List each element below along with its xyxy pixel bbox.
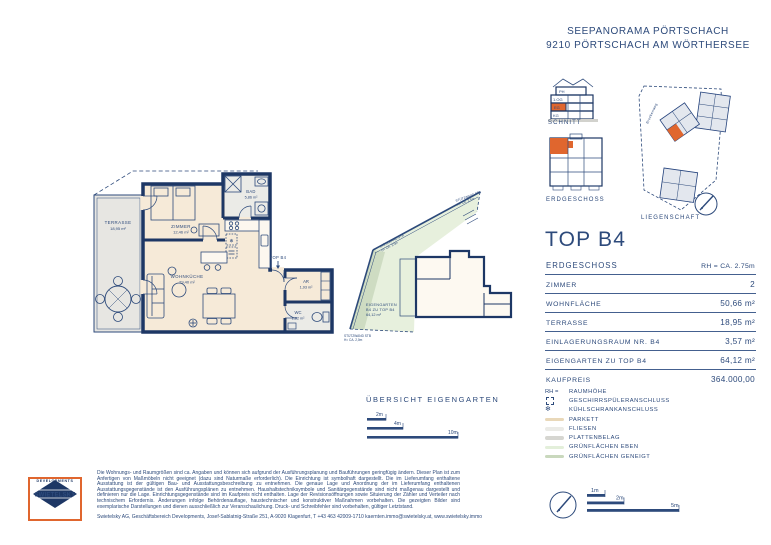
company-line: Swietelsky AG, Geschäftsbereich Developm… bbox=[97, 514, 517, 520]
project-name: SEEPANORAMA PÖRTSCHACH bbox=[538, 25, 758, 39]
mini-unit-outline bbox=[416, 251, 511, 317]
legend-row-geschirrspueler: GESCHIRRSPÜLERANSCHLUSS bbox=[545, 396, 756, 405]
bath-area: 5,86 m² bbox=[245, 196, 259, 200]
spec-row-terrasse: TERRASSE 18,95 m² bbox=[545, 313, 756, 332]
living-kitchen-label: WOHNKÜCHE bbox=[171, 274, 204, 279]
terrace: TERRASSE 18,95 m² bbox=[94, 195, 143, 332]
scale-2m: 2m bbox=[376, 412, 383, 418]
disclaimer-text: Die Wohnungs- und Raumgrößen sind ca. An… bbox=[97, 471, 460, 510]
spec-header-row: ERDGESCHOSS RH = CA. 2.75m bbox=[545, 256, 756, 275]
snowflake-icon: ❄ bbox=[229, 239, 233, 245]
project-address: 9210 PÖRTSCHACH AM WÖRTHERSEE bbox=[538, 39, 758, 53]
storage-label: AR bbox=[303, 279, 309, 284]
project-header: SEEPANORAMA PÖRTSCHACH 9210 PÖRTSCHACH A… bbox=[538, 25, 758, 52]
erdgeschoss-caption: ERDGESCHOSS bbox=[546, 197, 605, 203]
plattenbelag-swatch bbox=[545, 436, 564, 440]
svg-text:H= CA. 2,0m: H= CA. 2,0m bbox=[344, 338, 363, 342]
scale-4m: 4m bbox=[394, 421, 401, 427]
svg-text:EIGENGARTEN: EIGENGARTEN bbox=[366, 303, 397, 307]
north-compass-icon bbox=[550, 492, 576, 518]
floor-label-eg: EG bbox=[554, 105, 560, 110]
legend-row-gruen-eben: GRÜNFLÄCHEN EBEN bbox=[545, 443, 756, 452]
schnitt-diagram: PH 1.OG EG KG bbox=[548, 76, 600, 124]
gruenflaeche-geneigt-swatch bbox=[545, 455, 564, 459]
spec-table: ERDGESCHOSS RH = CA. 2.75m ZIMMER 2 WOHN… bbox=[545, 256, 756, 388]
spec-floor-label: ERDGESCHOSS bbox=[546, 261, 618, 270]
roof-outline bbox=[553, 79, 593, 87]
scale-5m: 5m bbox=[671, 503, 679, 509]
living-kitchen-area: 29,40 m² bbox=[179, 280, 195, 285]
garden-overview: STÜTZWAND STB H= CA. 2,5m STÜTZWAND STB … bbox=[338, 180, 523, 348]
swietelsky-logo-mark: SWIETELSKY bbox=[31, 479, 79, 509]
spec-row-eigengarten: EIGENGARTEN ZU TOP B4 64,12 m² bbox=[545, 351, 756, 370]
legend-row-plattenbelag: PLATTENBELAG bbox=[545, 433, 756, 442]
liegenschaft-caption: LIEGENSCHAFT bbox=[641, 215, 700, 221]
fliesen-swatch bbox=[545, 427, 564, 431]
legend-row-kuehlschrank: ❄ KÜHLSCHRANKANSCHLUSS bbox=[545, 406, 756, 415]
erdgeschoss-diagram bbox=[546, 132, 610, 196]
svg-text:64,12 m²: 64,12 m² bbox=[366, 313, 382, 317]
legend-row-parkett: PARKETT bbox=[545, 415, 756, 424]
legend-row-fliesen: FLIESEN bbox=[545, 424, 756, 433]
entry-marker: TOP B4 bbox=[270, 255, 287, 269]
spec-row-zimmer: ZIMMER 2 bbox=[545, 275, 756, 294]
liegenschaft-diagram: Brockenweg bbox=[636, 82, 758, 220]
entry-label: TOP B4 bbox=[270, 255, 287, 260]
spec-row-einlagerungsraum: EINLAGERUNGSRAUM NR. B4 3,57 m² bbox=[545, 332, 756, 351]
scale-2m-b: 2m bbox=[616, 496, 624, 502]
floorplan-sheet: { "header": { "line1": "SEEPANORAMA PÖRT… bbox=[0, 0, 771, 545]
parkett-swatch bbox=[545, 418, 564, 422]
schnitt-caption: SCHNITT bbox=[548, 120, 582, 126]
scale-1m: 1m bbox=[591, 488, 599, 494]
snowflake-icon: ❄ bbox=[545, 407, 551, 413]
highlighted-unit-b4 bbox=[550, 138, 568, 154]
garden-overview-title: ÜBERSICHT EIGENGARTEN bbox=[366, 395, 499, 404]
building-b4 bbox=[660, 103, 699, 142]
floor-label-kg: KG bbox=[553, 113, 559, 118]
svg-text:Brockenweg: Brockenweg bbox=[645, 103, 658, 125]
terrace-label: TERRASSE bbox=[105, 220, 132, 225]
kitchen-island bbox=[201, 252, 227, 263]
scale-10m: 10m bbox=[448, 430, 458, 436]
dishwasher-connection-icon bbox=[546, 397, 554, 405]
storage-area: 1,93 m² bbox=[300, 286, 314, 290]
floor-label-ph: PH bbox=[559, 89, 565, 94]
legend-row-gruen-geneigt: GRÜNFLÄCHEN GENEIGT bbox=[545, 452, 756, 461]
wc-label: WC bbox=[295, 310, 302, 315]
building-south bbox=[660, 168, 698, 202]
legend-row-raumhoehe: RH = RAUMHÖHE bbox=[545, 387, 756, 396]
street-label: Brockenweg bbox=[645, 103, 658, 125]
bedroom-area: 12,46 m² bbox=[173, 230, 189, 235]
logo-wordmark: SWIETELSKY bbox=[34, 492, 75, 498]
gruenflaeche-eben-swatch bbox=[545, 446, 564, 450]
bedroom-label: ZIMMER bbox=[171, 224, 191, 229]
retaining-wall-note-3: STÜTZWAND STB H= CA. 2,0m bbox=[344, 334, 371, 342]
floor-label-og: 1.OG bbox=[553, 97, 563, 102]
terrace-area: 18,95 m² bbox=[110, 226, 126, 231]
unit-title: TOP B4 bbox=[545, 228, 626, 252]
building-north bbox=[696, 92, 731, 132]
spec-room-height: RH = CA. 2.75m bbox=[701, 263, 755, 270]
plan-legend: RH = RAUMHÖHE GESCHIRRSPÜLERANSCHLUSS ❄ … bbox=[545, 387, 756, 461]
svg-text:B4 ZU TOP B4: B4 ZU TOP B4 bbox=[366, 308, 395, 312]
garden-scale-bar: 2m 4m 10m bbox=[366, 409, 476, 443]
spec-row-kaufpreis: KAUFPREIS 364.000,00 bbox=[545, 370, 756, 388]
bath-label: BAD bbox=[246, 189, 256, 194]
swietelsky-logo: SWIETELSKY DEVELOPMENTS bbox=[28, 477, 82, 521]
spec-row-wohnflaeche: WOHNFLÄCHE 50,66 m² bbox=[545, 294, 756, 313]
plan-scale-bar: 1m 2m 5m bbox=[548, 486, 698, 528]
north-compass-icon bbox=[695, 193, 717, 215]
wc-area: 1,82 m² bbox=[292, 317, 306, 321]
